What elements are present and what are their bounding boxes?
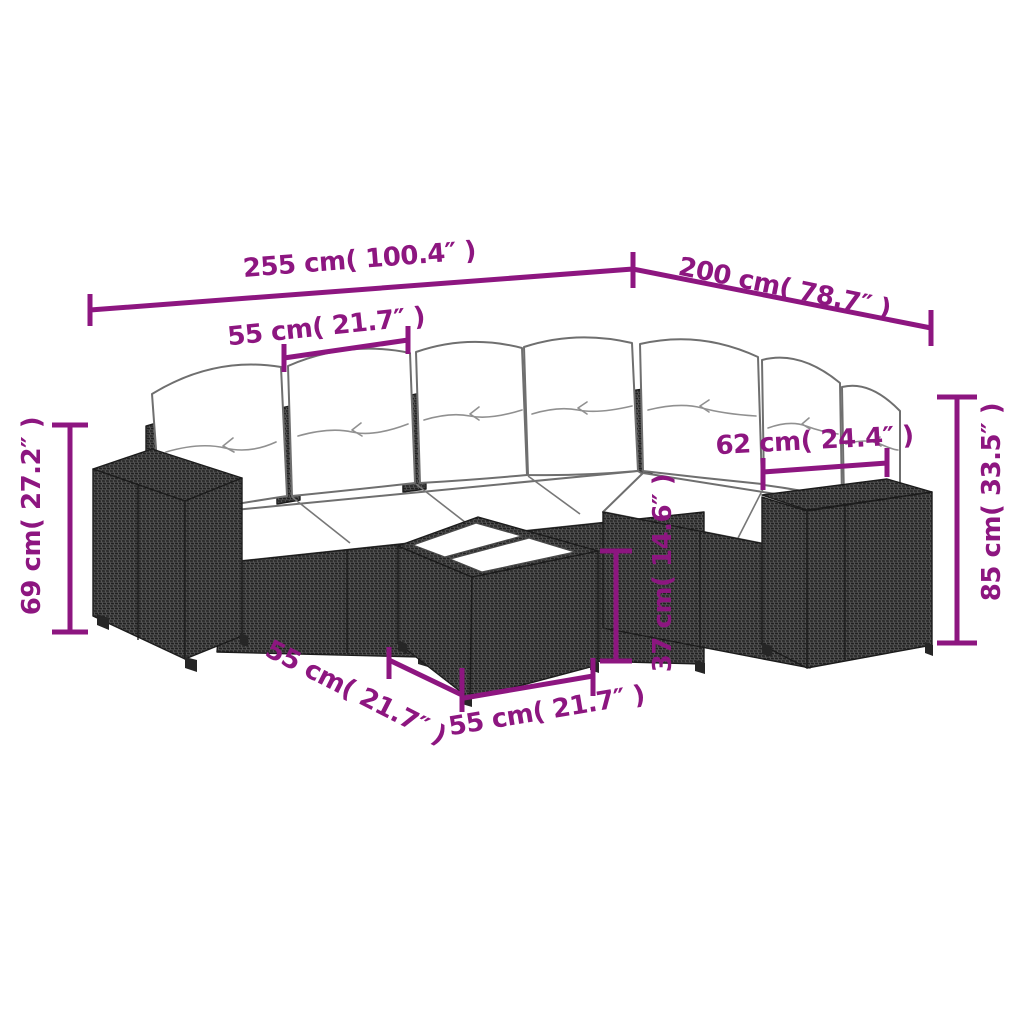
dim-label-total-height: 85 cm( 33.5″ ) bbox=[977, 403, 1007, 601]
right-armrest bbox=[762, 479, 932, 668]
back-cushion-5 bbox=[640, 339, 762, 484]
back-cushion-2 bbox=[288, 349, 415, 496]
product-dimension-diagram: 255 cm( 100.4″ ) 200 cm( 78.7″ ) 55 cm( … bbox=[0, 0, 1024, 1024]
dim-label-table-height: 37 cm( 14.6″ ) bbox=[648, 474, 678, 672]
dim-label-seat-height: 69 cm( 27.2″ ) bbox=[17, 417, 47, 615]
sofa-illustration bbox=[93, 337, 933, 707]
